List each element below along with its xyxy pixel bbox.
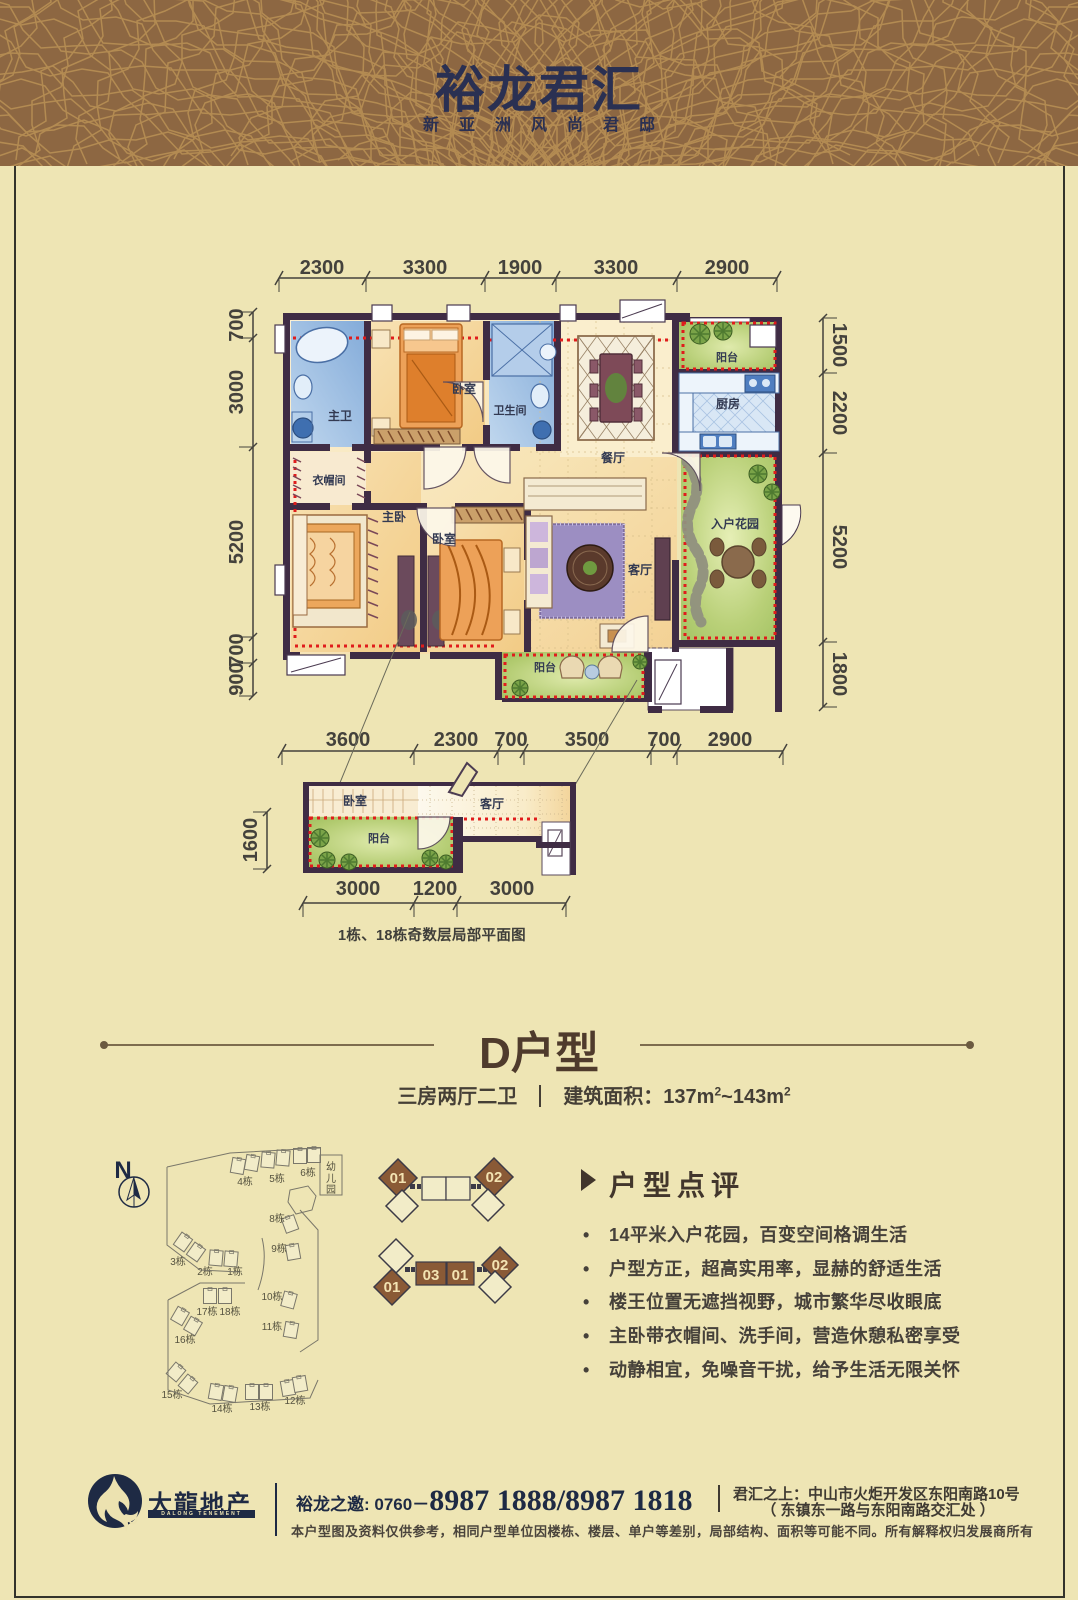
svg-text:18栋: 18栋 [219, 1305, 240, 1318]
svg-text:园: 园 [326, 1184, 336, 1196]
svg-text:客厅: 客厅 [479, 796, 504, 811]
svg-text:餐厅: 餐厅 [601, 450, 625, 465]
svg-text:卧室: 卧室 [343, 793, 367, 808]
svg-text:700: 700 [494, 729, 527, 751]
svg-text:8栋: 8栋 [269, 1212, 285, 1225]
svg-text:主卫: 主卫 [328, 408, 352, 423]
svg-text:2900: 2900 [705, 257, 750, 279]
svg-text:5栋: 5栋 [269, 1172, 285, 1185]
svg-text:2200: 2200 [828, 391, 850, 436]
svg-text:3300: 3300 [403, 257, 448, 279]
svg-text:13栋: 13栋 [249, 1400, 270, 1413]
svg-text:N: N [114, 1157, 131, 1184]
svg-text:2900: 2900 [708, 729, 753, 751]
svg-text:11栋: 11栋 [262, 1320, 282, 1333]
svg-text:03: 03 [423, 1267, 440, 1284]
svg-text:10栋: 10栋 [261, 1290, 282, 1303]
svg-text:儿: 儿 [326, 1173, 336, 1185]
svg-text:衣帽间: 衣帽间 [313, 473, 346, 487]
svg-text:3000: 3000 [226, 370, 248, 415]
svg-text:16栋: 16栋 [174, 1333, 195, 1346]
svg-text:01: 01 [384, 1279, 401, 1296]
svg-text:01: 01 [452, 1267, 469, 1284]
svg-text:1600: 1600 [240, 818, 262, 863]
svg-text:1500: 1500 [828, 323, 850, 368]
svg-text:卫生间: 卫生间 [494, 403, 527, 417]
svg-text:3500: 3500 [565, 729, 610, 751]
svg-text:15栋: 15栋 [161, 1388, 182, 1401]
svg-text:阳台: 阳台 [716, 350, 738, 364]
svg-text:700: 700 [226, 308, 248, 341]
svg-text:700: 700 [226, 633, 248, 666]
svg-text:阳台: 阳台 [368, 831, 390, 845]
svg-text:02: 02 [486, 1169, 503, 1186]
svg-text:3600: 3600 [326, 729, 371, 751]
svg-text:5200: 5200 [226, 520, 248, 565]
svg-text:1800: 1800 [828, 652, 850, 697]
svg-text:1栋、18栋奇数层局部平面图: 1栋、18栋奇数层局部平面图 [338, 926, 526, 944]
svg-text:1900: 1900 [498, 257, 543, 279]
svg-text:6栋: 6栋 [300, 1166, 316, 1179]
svg-text:2300: 2300 [434, 729, 479, 751]
svg-text:卧室: 卧室 [432, 531, 456, 546]
svg-text:卧室: 卧室 [452, 381, 476, 396]
svg-text:9栋: 9栋 [271, 1242, 287, 1255]
svg-text:入户花园: 入户花园 [711, 516, 759, 531]
svg-text:阳台: 阳台 [534, 660, 556, 674]
svg-text:900: 900 [226, 662, 248, 695]
svg-text:3000: 3000 [336, 878, 381, 900]
svg-text:3300: 3300 [594, 257, 639, 279]
svg-text:主卧: 主卧 [382, 509, 406, 524]
svg-text:幼: 幼 [326, 1160, 336, 1173]
svg-text:01: 01 [390, 1170, 407, 1187]
svg-text:5200: 5200 [828, 525, 850, 570]
svg-text:700: 700 [647, 729, 680, 751]
svg-text:17栋: 17栋 [196, 1305, 217, 1318]
svg-text:12栋: 12栋 [284, 1394, 305, 1407]
svg-text:2栋: 2栋 [197, 1265, 213, 1278]
svg-text:厨房: 厨房 [716, 396, 740, 411]
svg-text:客厅: 客厅 [627, 562, 652, 577]
svg-text:1200: 1200 [413, 878, 458, 900]
svg-text:4栋: 4栋 [237, 1175, 253, 1188]
svg-text:3000: 3000 [490, 878, 535, 900]
svg-text:2300: 2300 [300, 257, 345, 279]
